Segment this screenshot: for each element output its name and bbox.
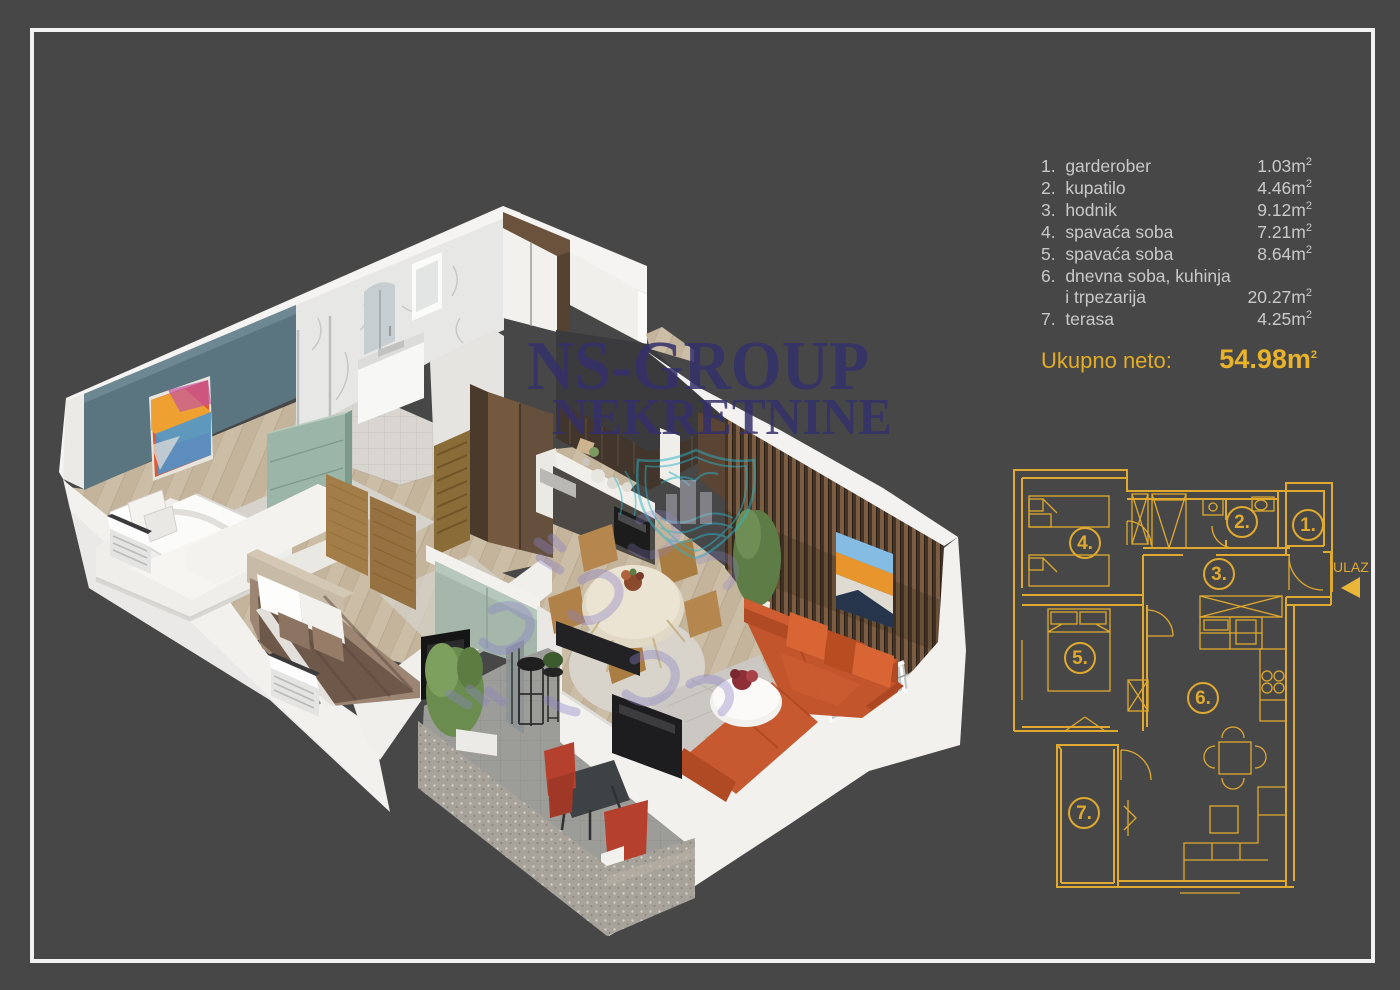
svg-text:7.: 7. xyxy=(1076,803,1092,824)
svg-text:2.: 2. xyxy=(1234,512,1250,533)
svg-text:6.: 6. xyxy=(1195,688,1211,709)
svg-text:3.: 3. xyxy=(1211,564,1227,585)
svg-text:5.: 5. xyxy=(1072,648,1088,669)
svg-text:4.: 4. xyxy=(1077,533,1093,554)
svg-text:NEKRETNINE: NEKRETNINE xyxy=(552,389,892,446)
svg-text:ULAZ: ULAZ xyxy=(1333,559,1369,575)
svg-text:1.: 1. xyxy=(1300,515,1316,536)
